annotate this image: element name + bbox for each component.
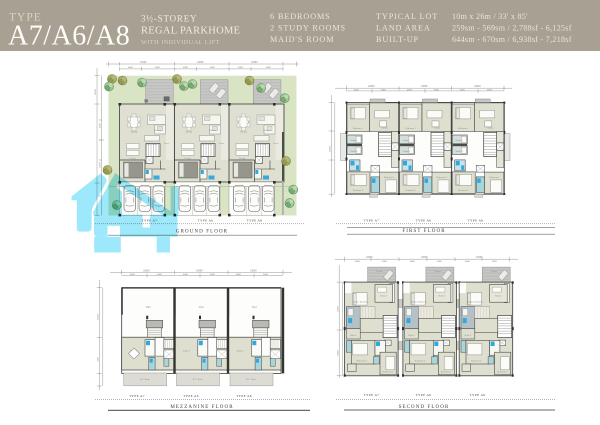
svg-text:20000: 20000 — [328, 145, 331, 152]
svg-text:10000: 10000 — [474, 85, 481, 88]
svg-text:BUILT-UP: BUILT-UP — [376, 35, 419, 44]
svg-text:6000: 6000 — [487, 88, 493, 91]
svg-text:10000: 10000 — [336, 349, 339, 356]
svg-text:10000: 10000 — [140, 61, 147, 64]
svg-text:6000: 6000 — [382, 260, 388, 263]
svg-text:644sm - 670sm / 6,938sf - 7,21: 644sm - 670sm / 6,938sf - 7,218sf — [452, 35, 572, 44]
svg-text:6000: 6000 — [437, 260, 443, 263]
svg-text:10000: 10000 — [366, 256, 373, 259]
svg-text:WITH INDIVIDUAL LIFT: WITH INDIVIDUAL LIFT — [141, 39, 220, 46]
svg-text:MAID'S ROOM: MAID'S ROOM — [270, 35, 334, 44]
svg-text:4000: 4000 — [465, 260, 471, 263]
svg-text:4000: 4000 — [354, 88, 360, 91]
svg-text:8000: 8000 — [99, 122, 102, 128]
svg-text:GROUND FLOOR: GROUND FLOOR — [176, 230, 228, 235]
svg-text:REGAL PARKHOME: REGAL PARKHOME — [141, 26, 240, 37]
svg-text:6000: 6000 — [492, 260, 498, 263]
svg-text:10000: 10000 — [251, 61, 258, 64]
svg-text:10000: 10000 — [421, 85, 428, 88]
svg-text:3½-STOREY: 3½-STOREY — [141, 14, 197, 24]
svg-text:TYPE A8: TYPE A8 — [247, 219, 263, 223]
svg-text:6000: 6000 — [434, 88, 440, 91]
svg-text:TYPE A7: TYPE A7 — [129, 394, 145, 398]
svg-text:6000: 6000 — [266, 66, 272, 69]
svg-text:TYPE A6: TYPE A6 — [416, 393, 432, 397]
svg-text:Void: Void — [146, 306, 152, 309]
svg-text:10000: 10000 — [476, 256, 483, 259]
svg-text:10000: 10000 — [368, 85, 375, 88]
svg-text:4000: 4000 — [183, 66, 189, 69]
svg-text:6000: 6000 — [210, 66, 216, 69]
svg-text:6000: 6000 — [263, 273, 269, 276]
svg-text:Void: Void — [252, 306, 258, 309]
svg-text:TYPE A7: TYPE A7 — [364, 218, 380, 222]
svg-text:7000: 7000 — [96, 356, 99, 362]
svg-text:10000: 10000 — [421, 256, 428, 259]
svg-text:4000: 4000 — [355, 260, 361, 263]
svg-text:TYPE A8: TYPE A8 — [470, 393, 486, 397]
svg-text:Void: Void — [199, 306, 205, 309]
svg-text:6000: 6000 — [155, 66, 161, 69]
svg-text:10000: 10000 — [196, 269, 203, 272]
svg-text:4000: 4000 — [460, 88, 466, 91]
svg-text:10000: 10000 — [336, 305, 339, 312]
svg-text:26000: 26000 — [94, 88, 97, 95]
svg-text:TYPE A8: TYPE A8 — [468, 218, 484, 222]
svg-text:SECOND FLOOR: SECOND FLOOR — [399, 405, 450, 410]
svg-text:10m x 26m / 33' x 85': 10m x 26m / 33' x 85' — [452, 12, 528, 21]
svg-text:4000: 4000 — [238, 66, 244, 69]
svg-text:TYPE A7: TYPE A7 — [364, 393, 380, 397]
svg-text:6000: 6000 — [157, 273, 163, 276]
svg-text:4000: 4000 — [128, 66, 134, 69]
svg-text:6000: 6000 — [210, 273, 216, 276]
svg-text:10000: 10000 — [197, 61, 204, 64]
svg-text:6 BEDROOMS: 6 BEDROOMS — [270, 12, 331, 21]
svg-text:LAND AREA: LAND AREA — [376, 24, 431, 33]
svg-text:6000: 6000 — [381, 88, 387, 91]
svg-text:TYPE A6: TYPE A6 — [183, 394, 199, 398]
svg-text:2 STUDY ROOMS: 2 STUDY ROOMS — [270, 24, 346, 33]
svg-text:4000: 4000 — [407, 88, 413, 91]
svg-text:TYPE A6: TYPE A6 — [198, 219, 214, 223]
svg-text:4000: 4000 — [236, 273, 242, 276]
svg-text:10000: 10000 — [250, 269, 257, 272]
svg-text:4000: 4000 — [130, 273, 136, 276]
svg-text:FIRST FLOOR: FIRST FLOOR — [402, 229, 445, 234]
svg-text:TYPE A6: TYPE A6 — [416, 218, 432, 222]
svg-text:TYPE A8: TYPE A8 — [236, 394, 252, 398]
svg-text:4000: 4000 — [183, 273, 189, 276]
svg-text:12000: 12000 — [99, 161, 102, 168]
svg-text:TYPICAL LOT: TYPICAL LOT — [376, 12, 438, 21]
svg-text:10000: 10000 — [143, 269, 150, 272]
svg-text:14500: 14500 — [96, 313, 99, 320]
svg-text:259sm - 569sm / 2,788sf - 6,12: 259sm - 569sm / 2,788sf - 6,125sf — [452, 24, 572, 33]
svg-text:MEZZANINE FLOOR: MEZZANINE FLOOR — [170, 405, 233, 410]
svg-text:4000: 4000 — [410, 260, 416, 263]
svg-text:A7/A6/A8: A7/A6/A8 — [8, 21, 130, 52]
